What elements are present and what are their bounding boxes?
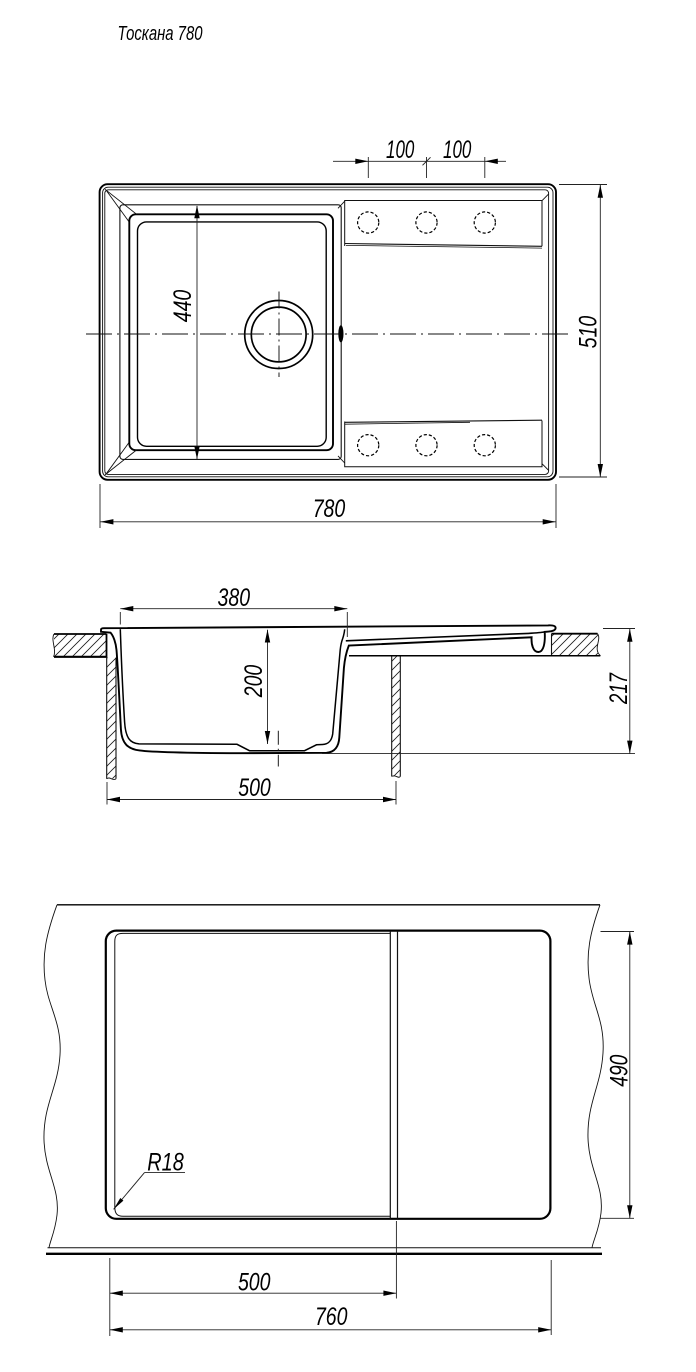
svg-text:380: 380 xyxy=(218,584,251,612)
svg-text:100: 100 xyxy=(386,136,414,164)
svg-text:500: 500 xyxy=(238,774,271,802)
svg-text:200: 200 xyxy=(240,665,268,698)
svg-text:440: 440 xyxy=(169,290,197,323)
svg-text:100: 100 xyxy=(443,136,471,164)
svg-text:490: 490 xyxy=(605,1055,633,1087)
svg-text:Тоскана 780: Тоскана 780 xyxy=(118,23,203,45)
svg-text:R18: R18 xyxy=(147,1148,184,1176)
svg-text:510: 510 xyxy=(575,316,603,349)
svg-text:500: 500 xyxy=(238,1269,271,1297)
svg-text:760: 760 xyxy=(315,1303,348,1331)
svg-text:780: 780 xyxy=(313,495,346,523)
svg-text:217: 217 xyxy=(605,672,633,704)
